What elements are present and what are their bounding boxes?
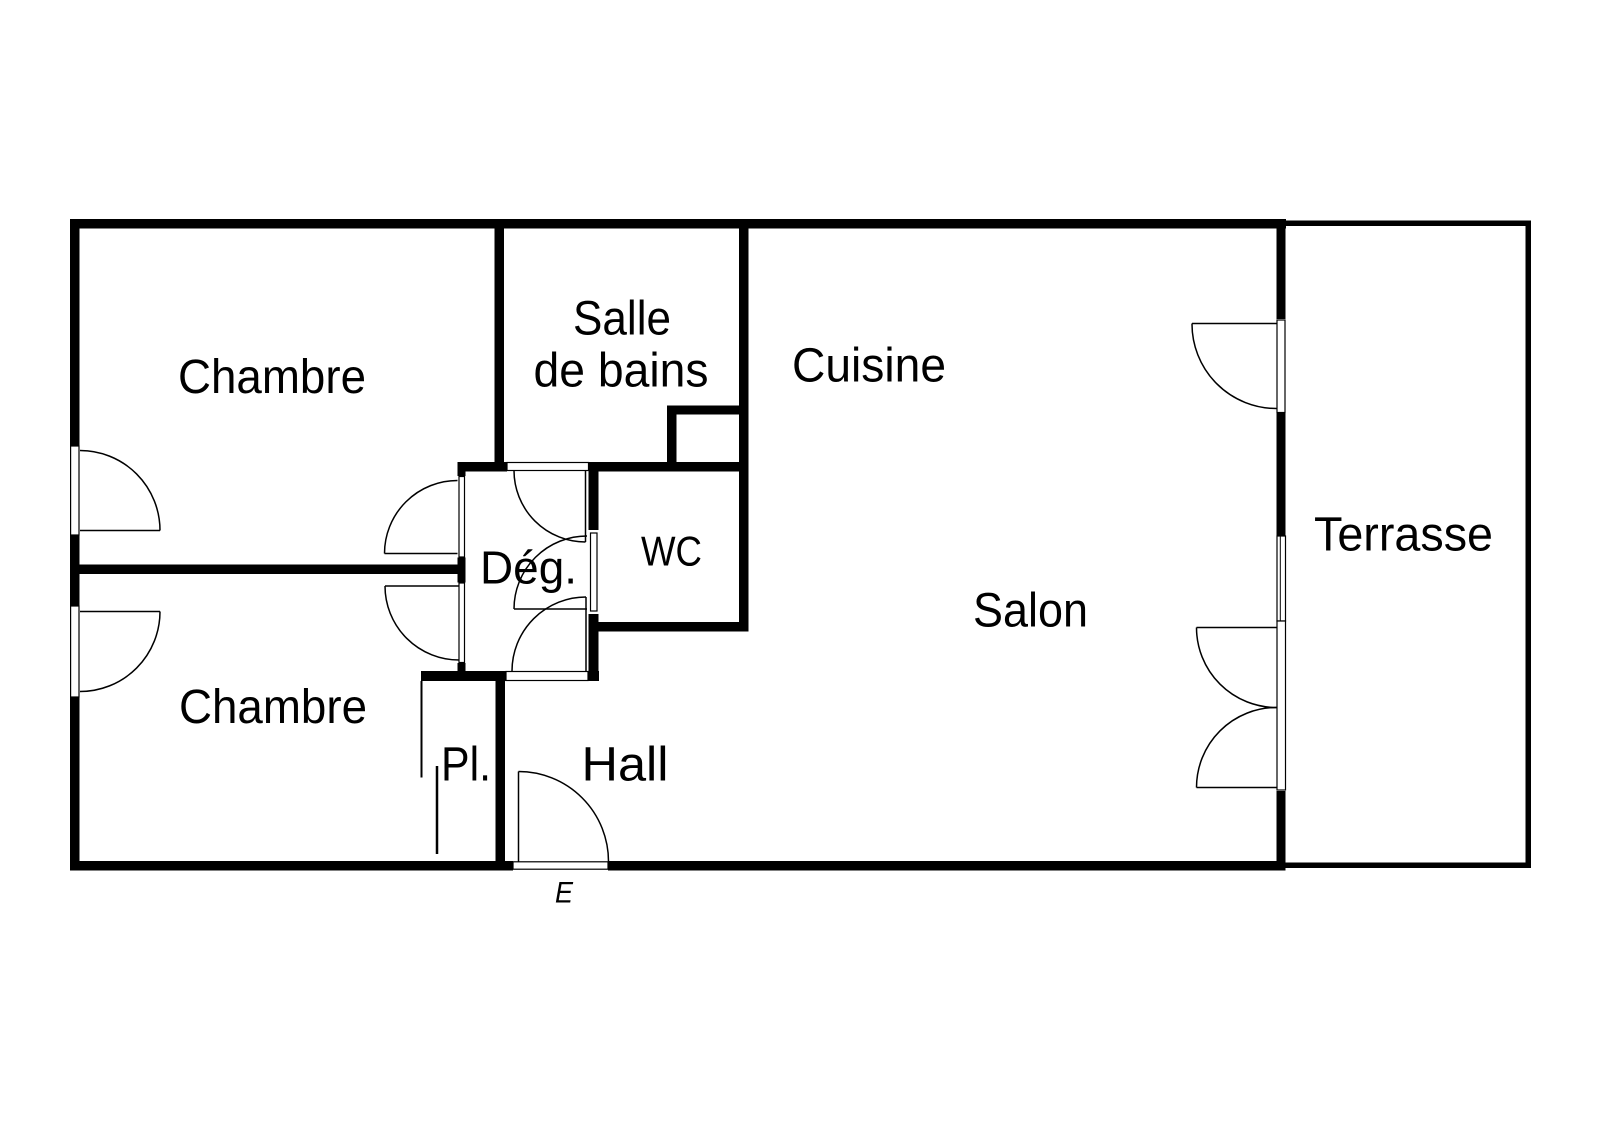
svg-text:WC: WC	[641, 528, 702, 575]
svg-text:Hall: Hall	[582, 739, 669, 792]
svg-text:de bains: de bains	[534, 345, 709, 398]
svg-text:Cuisine: Cuisine	[792, 340, 946, 393]
svg-text:Salon: Salon	[973, 585, 1088, 638]
svg-text:Pl.: Pl.	[441, 739, 491, 792]
svg-text:Terrasse: Terrasse	[1314, 509, 1493, 562]
svg-text:Chambre: Chambre	[178, 351, 366, 404]
svg-text:Salle: Salle	[573, 293, 671, 346]
svg-text:Dég.: Dég.	[480, 542, 577, 594]
svg-text:E: E	[555, 877, 574, 910]
svg-text:Chambre: Chambre	[179, 681, 367, 734]
